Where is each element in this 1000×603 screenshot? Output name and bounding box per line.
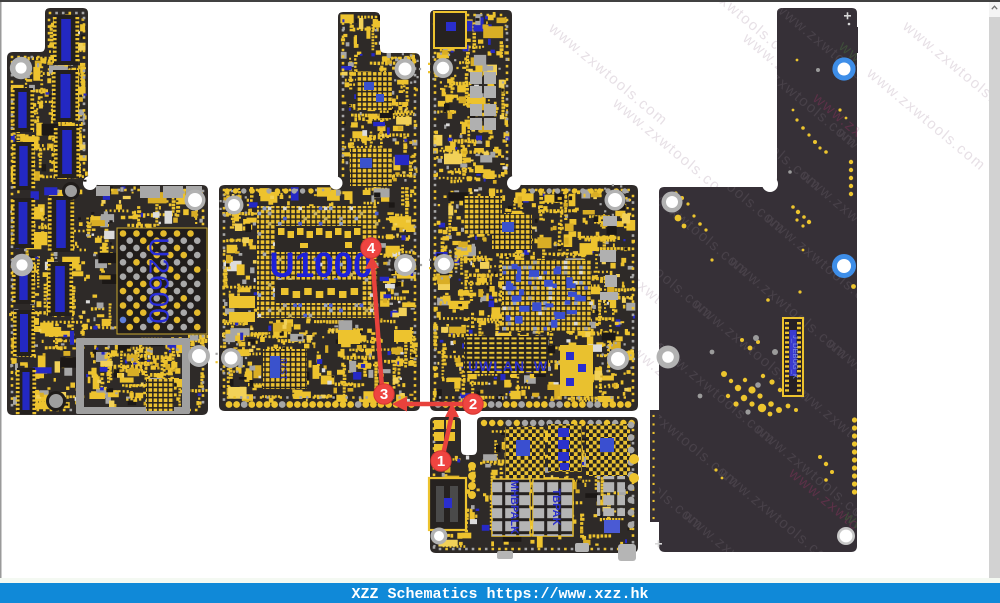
svg-text:U1000: U1000 [269, 246, 372, 285]
svg-text:J_DEBUG_K: J_DEBUG_K [791, 335, 800, 379]
svg-text:1: 1 [437, 453, 445, 470]
svg-text:MHBPALK: MHBPALK [508, 480, 520, 534]
svg-text:3: 3 [380, 386, 388, 403]
svg-text:1S7B: 1S7B [279, 358, 289, 380]
svg-text:U2600: U2600 [144, 237, 175, 325]
svg-text:UWLAN_W: UWLAN_W [468, 358, 548, 374]
svg-text:TBPAK: TBPAK [550, 488, 562, 525]
svg-text:2: 2 [469, 396, 477, 413]
svg-text:XZZ Schematics https://www.xzz: XZZ Schematics https://www.xzz.hk [351, 586, 648, 603]
svg-text:4: 4 [367, 240, 376, 257]
